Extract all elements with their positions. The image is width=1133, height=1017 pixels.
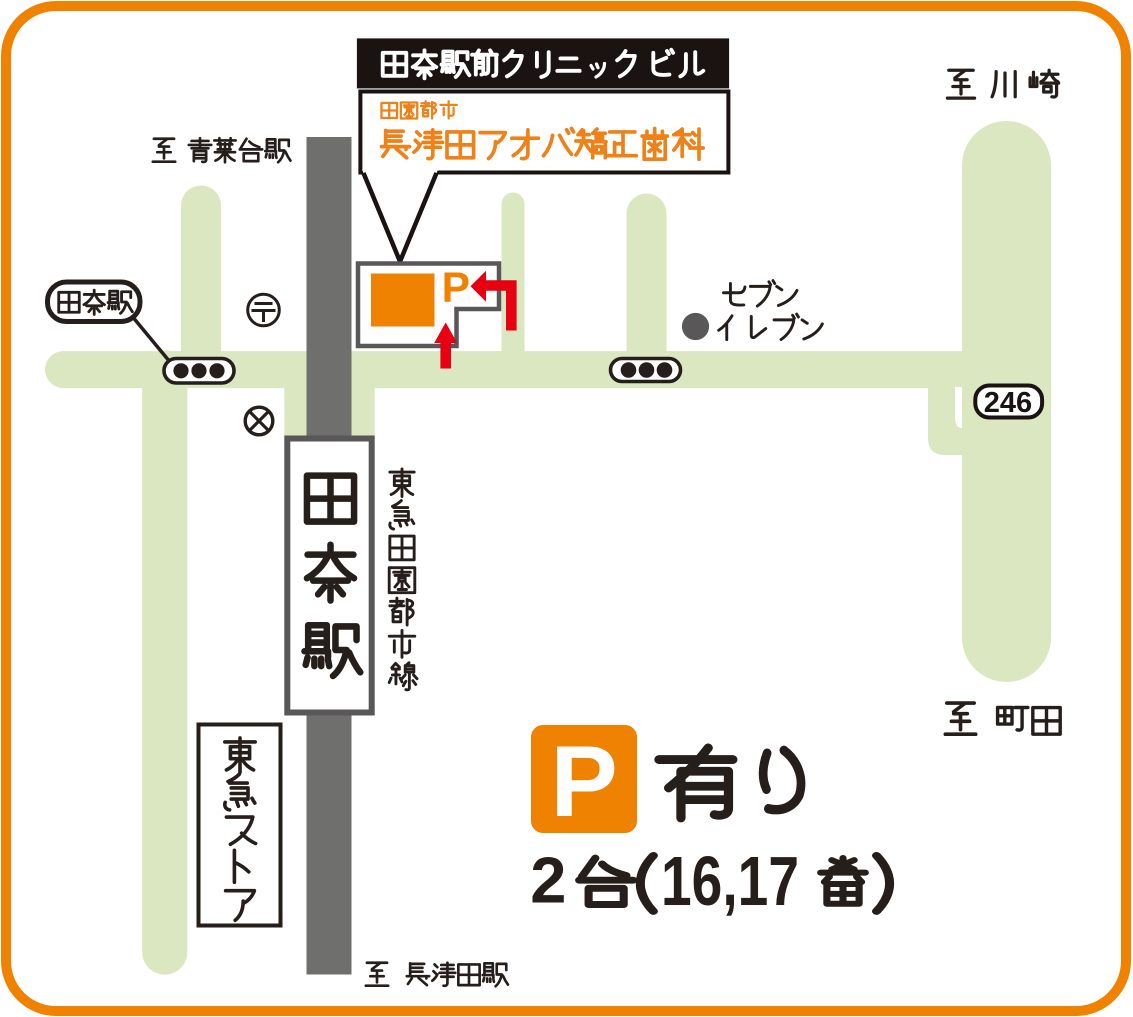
svg-text:P: P (550, 726, 617, 838)
svg-text:2: 2 (530, 844, 566, 917)
svg-text:16,17: 16,17 (661, 842, 799, 920)
svg-text:P: P (442, 265, 470, 312)
svg-text:246: 246 (984, 387, 1032, 419)
